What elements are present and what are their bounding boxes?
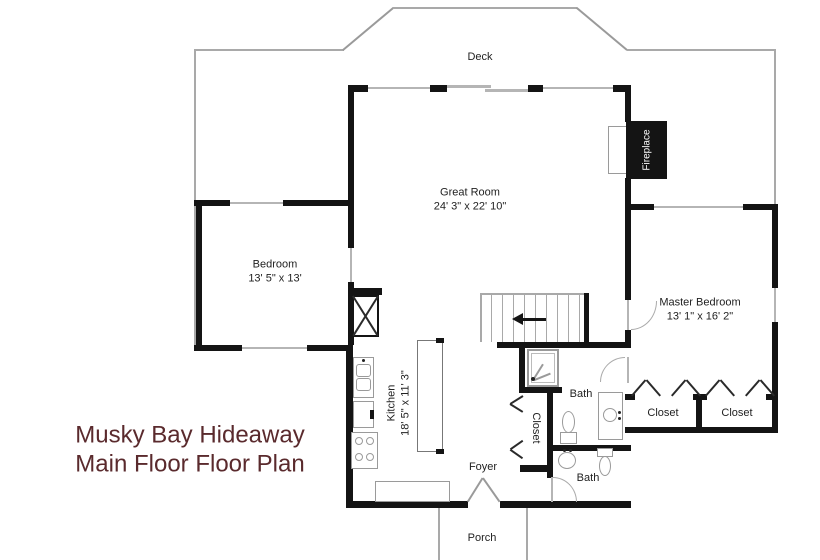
master-bedroom-dims: 13' 1" x 16' 2" [659, 310, 740, 324]
bifold-door [720, 379, 735, 396]
sink-icon [603, 408, 617, 422]
shower-head-icon [531, 377, 535, 381]
bifold-door [631, 379, 646, 396]
sink-icon [558, 452, 576, 469]
bifold-door [646, 379, 661, 396]
faucet-icon [618, 411, 621, 414]
exterior-wall [628, 204, 654, 210]
master-bedroom-label: Master Bedroom 13' 1" x 16' 2" [659, 296, 740, 325]
stairs-direction-arrow-shaft [522, 318, 546, 321]
sink-icon [356, 364, 371, 377]
deck-outline-angle-left [342, 7, 394, 51]
door-leaf [467, 477, 483, 502]
bifold-door [671, 379, 686, 396]
porch-label: Porch [468, 531, 497, 545]
faucet-icon [618, 417, 621, 420]
interior-wall [547, 445, 553, 478]
bedroom-label: Bedroom 13' 5" x 13' [248, 258, 301, 287]
exterior-wall [194, 345, 242, 351]
lower-bath-label: Bath [577, 471, 600, 485]
door-leaf [627, 300, 629, 330]
interior-wall [696, 394, 702, 427]
stair-tread [502, 294, 503, 342]
door-swing-arc [600, 357, 625, 382]
plan-title: Musky Bay Hideaway Main Floor Floor Plan [75, 421, 304, 480]
exterior-wall [772, 204, 778, 288]
kitchen-counter [375, 481, 450, 502]
stove-burner [366, 453, 374, 461]
upper-bath-label: Bath [570, 387, 593, 401]
bifold-door [705, 379, 720, 396]
floor-plan: Deck Porch Great Room 24' 3" x 22' 10" F… [0, 0, 820, 560]
door-leaf [627, 357, 629, 383]
bifold-door [745, 379, 760, 396]
stairs-outline-top [480, 293, 588, 295]
sliding-door [485, 89, 528, 92]
kitchen-island [417, 340, 443, 452]
great-room-dims: 24' 3" x 22' 10" [434, 200, 507, 214]
stair-tread [579, 294, 580, 342]
great-room-label: Great Room 24' 3" x 22' 10" [434, 186, 507, 215]
bedroom-name: Bedroom [248, 258, 301, 272]
bifold-door [510, 440, 523, 450]
toilet-icon [562, 411, 575, 433]
porch-outline-right [526, 507, 528, 560]
bedroom-dims: 13' 5" x 13' [248, 272, 301, 286]
stove-burner [355, 453, 363, 461]
interior-wall [519, 387, 562, 393]
stair-tread [546, 294, 547, 342]
hearth [608, 126, 627, 174]
exterior-wall [283, 200, 351, 206]
fireplace-label: Fireplace [641, 129, 652, 170]
stair-tread [557, 294, 558, 342]
toilet-icon [599, 456, 611, 476]
stairs-direction-arrow-head [512, 313, 523, 325]
deck-outline-right [774, 50, 776, 207]
window [242, 347, 307, 349]
stove-burner [355, 437, 363, 445]
interior-wall [625, 178, 631, 300]
exterior-wall [346, 345, 353, 507]
plan-title-line1: Musky Bay Hideaway [75, 421, 304, 450]
island-end-cap [436, 338, 444, 343]
plan-title-line2: Main Floor Floor Plan [75, 450, 304, 479]
window [368, 87, 430, 89]
exterior-wall [500, 501, 631, 508]
exterior-wall [346, 501, 468, 508]
sink-icon [356, 378, 371, 391]
deck-outline-top [393, 7, 577, 9]
deck-outline-top-right [627, 49, 776, 51]
interior-wall [348, 206, 354, 248]
foyer-label: Foyer [469, 460, 497, 474]
porch-outline-left [438, 507, 440, 560]
faucet-icon [563, 449, 566, 452]
fireplace: Fireplace [626, 121, 667, 179]
stair-tread [491, 294, 492, 342]
kitchen-label: Kitchen 18' 5" x 11' 3" [385, 370, 414, 436]
deck-label: Deck [467, 50, 492, 64]
toilet-icon [560, 432, 577, 444]
master-closet-left-label: Closet [647, 406, 678, 420]
stairs-outline-left [480, 293, 482, 342]
refrigerator-handle [370, 410, 374, 419]
master-bedroom-name: Master Bedroom [659, 296, 740, 310]
window [774, 288, 776, 322]
window [230, 202, 283, 204]
master-closet-right-label: Closet [721, 406, 752, 420]
kitchen-name: Kitchen [385, 370, 399, 436]
exterior-wall [348, 85, 354, 206]
exterior-wall [196, 200, 202, 348]
exterior-wall [430, 85, 447, 92]
interior-wall [519, 342, 525, 393]
bifold-door [510, 449, 523, 459]
exterior-wall [625, 427, 778, 433]
exterior-wall [528, 85, 543, 92]
window [654, 206, 743, 208]
faucet-icon [362, 359, 365, 362]
stairs-end [584, 293, 589, 342]
stove-burner [366, 437, 374, 445]
great-room-name: Great Room [434, 186, 507, 200]
window [543, 87, 613, 89]
kitchen-dims: 18' 5" x 11' 3" [399, 370, 413, 436]
bifold-door [510, 403, 524, 412]
sliding-door [447, 85, 491, 88]
island-end-cap [436, 449, 444, 454]
door-swing-arc [553, 477, 577, 502]
interior-wall [497, 342, 631, 348]
exterior-wall [625, 85, 631, 122]
door-swing-arc [631, 301, 657, 330]
faucet-icon [569, 449, 572, 452]
deck-outline-top-left [194, 49, 344, 51]
stair-tread [568, 294, 569, 342]
deck-outline-angle-right [576, 7, 628, 51]
door-swing-arc [483, 477, 501, 502]
hall-closet-label: Closet [530, 412, 542, 443]
exterior-wall [772, 322, 778, 433]
interior-wall [348, 288, 382, 295]
pocket-door [350, 248, 352, 282]
